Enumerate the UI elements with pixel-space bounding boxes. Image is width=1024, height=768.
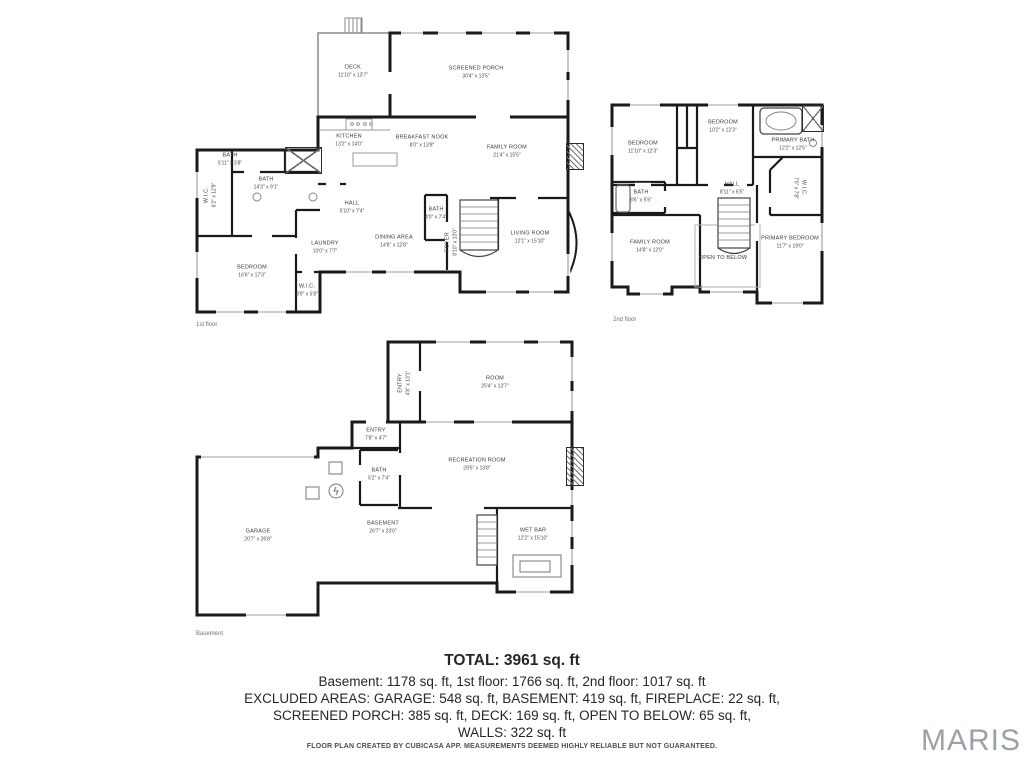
room-name: GARAGE	[244, 528, 271, 536]
room-label-entry: ENTRY 7'8" x 4'7"	[365, 427, 387, 442]
room-label-powder-bath: BATH 4'0" x 7'4"	[425, 206, 447, 221]
room-dims: 14'3" x 9'1"	[254, 184, 279, 191]
stairs-icon-first-floor	[460, 200, 498, 257]
room-name: W.I.C.	[203, 183, 211, 208]
area-summary: TOTAL: 3961 sq. ft Basement: 1178 sq. ft…	[0, 652, 1024, 741]
room-label-entry-upper: ENTRY 4'8" x 13'1"	[397, 371, 412, 396]
first-floor-plan: DECK 11'10" x 13'7" SCREENED PORCH 30'4"…	[186, 14, 606, 339]
room-label-breakfast-nook: BREAKFAST NOOK 8'0" x 13'8"	[396, 134, 449, 149]
room-name: PRIMARY BATH	[771, 137, 814, 145]
floor-areas-text: Basement: 1178 sq. ft, 1st floor: 1766 s…	[0, 673, 1024, 690]
room-dims: 3'9" x 5'8"	[296, 291, 318, 298]
room-dims: 26'7" x 23'0"	[367, 528, 399, 535]
room-label-wic-bedroom: W.I.C. 6'2" x 12'9"	[203, 183, 218, 208]
room-label-bath: BATH 8'6" x 5'5"	[630, 189, 652, 204]
room-label-hall: HALL 8'11" x 6'5"	[720, 181, 744, 196]
room-dims: 4'8" x 13'1"	[405, 371, 412, 396]
room-label-garage: GARAGE 20'7" x 26'8"	[244, 528, 271, 543]
room-label-hall: HALL 5'10" x 7'4"	[340, 200, 365, 215]
room-label-dining-area: DINING AREA 14'8" x 12'8"	[375, 234, 413, 249]
room-label-bath-main: BATH 14'3" x 9'1"	[254, 176, 279, 191]
room-dims: 12'2" x 15'10"	[518, 535, 548, 542]
basement-upper-outline	[388, 342, 572, 422]
room-name: BEDROOM	[237, 264, 267, 272]
room-label-open-to-below: OPEN TO BELOW	[699, 255, 748, 263]
room-dims: 16'6" x 17'3"	[237, 272, 267, 279]
room-name: FAMILY ROOM	[487, 144, 527, 152]
room-label-bath-small: BATH 5'11" x 3'8"	[218, 152, 242, 167]
basement-drawing	[186, 335, 606, 645]
floor-label-basement: Basement	[196, 631, 223, 637]
room-dims: 21'4" x 15'5"	[487, 152, 527, 159]
shower-icon	[285, 147, 322, 174]
room-name: FAMILY ROOM	[630, 239, 670, 247]
total-area-text: TOTAL: 3961 sq. ft	[0, 652, 1024, 670]
room-dims: 11'10" x 12'3"	[628, 148, 658, 155]
room-name: W.I.C.	[799, 177, 807, 199]
room-name: WET BAR	[518, 527, 548, 535]
room-dims: 8'10" x 13'0"	[452, 228, 459, 255]
room-name: BATH	[368, 467, 390, 475]
room-label-wet-bar: WET BAR 12'2" x 15'10"	[518, 527, 548, 542]
room-dims: 25'4" x 13'7"	[481, 383, 508, 390]
room-label-wic: W.I.C. 7'0" x 7'8"	[791, 177, 806, 199]
room-name: LAUNDRY	[311, 240, 339, 248]
room-dims: 30'4" x 13'5"	[449, 73, 504, 80]
room-dims: 10'2" x 12'3"	[708, 127, 738, 134]
bath-sinks-icon	[253, 193, 317, 201]
wet-bar-counter-icon	[513, 555, 561, 577]
room-name: HALL	[720, 181, 744, 189]
walls-area-text: WALLS: 322 sq. ft	[0, 724, 1024, 741]
room-name: ENTRY	[397, 371, 405, 396]
room-label-foyer: FOYER 8'10" x 13'0"	[444, 228, 459, 255]
room-label-primary-bath: PRIMARY BATH 12'2" x 12'5"	[771, 137, 814, 152]
fireplace-icon	[566, 447, 584, 486]
room-label-room: ROOM 25'4" x 13'7"	[481, 375, 508, 390]
floor-label-1st: 1st floor	[196, 322, 217, 328]
room-dims: 8'0" x 13'8"	[396, 142, 449, 149]
room-label-kitchen: KITCHEN 13'2" x 14'0"	[335, 133, 362, 148]
room-name: RECREATION ROOM	[448, 457, 505, 465]
room-label-basement-room: BASEMENT 26'7" x 23'0"	[367, 520, 399, 535]
basement-plan: ENTRY 4'8" x 13'1" ROOM 25'4" x 13'7" EN…	[186, 335, 606, 645]
room-name: SCREENED PORCH	[449, 65, 504, 73]
room-dims: 20'7" x 26'8"	[244, 536, 271, 543]
room-label-deck: DECK 11'10" x 13'7"	[338, 64, 368, 79]
fireplace-icon	[566, 143, 584, 170]
deck-stairs-icon	[345, 18, 362, 33]
room-dims: 14'8" x 12'8"	[375, 242, 413, 249]
room-dims: 10'0" x 7'7"	[311, 248, 339, 255]
room-name: BATH	[425, 206, 447, 214]
room-dims: 5'11" x 3'8"	[218, 160, 242, 167]
room-dims: 14'8" x 12'0"	[630, 247, 670, 254]
room-label-primary-bedroom: PRIMARY BEDROOM 11'7" x 19'0"	[761, 235, 819, 250]
excluded-areas-text-2: SCREENED PORCH: 385 sq. ft, DECK: 169 sq…	[0, 707, 1024, 724]
room-label-bedroom-2: BEDROOM 10'2" x 12'3"	[708, 119, 738, 134]
room-name: HALL	[340, 200, 365, 208]
room-dims: 7'0" x 7'8"	[791, 177, 798, 199]
room-name: BEDROOM	[708, 119, 738, 127]
room-dims: 6'2" x 12'9"	[211, 183, 218, 208]
room-name: OPEN TO BELOW	[699, 255, 748, 263]
room-dims: 5'10" x 7'4"	[340, 208, 365, 215]
maris-logo: MARIS	[921, 724, 1021, 758]
room-dims: 12'1" x 15'10"	[511, 238, 550, 245]
room-label-family-room: FAMILY ROOM 14'8" x 12'0"	[630, 239, 670, 254]
room-name: KITCHEN	[335, 133, 362, 141]
shower-icon	[802, 105, 824, 132]
second-floor-plan: BEDROOM 11'10" x 12'3" BEDROOM 10'2" x 1…	[605, 95, 830, 330]
room-name: PRIMARY BEDROOM	[761, 235, 819, 243]
room-name: LIVING ROOM	[511, 230, 550, 238]
room-name: DINING AREA	[375, 234, 413, 242]
stairs-icon-basement	[477, 515, 497, 565]
room-label-bedroom: BEDROOM 16'6" x 17'3"	[237, 264, 267, 279]
room-label-screened-porch: SCREENED PORCH 30'4" x 13'5"	[449, 65, 504, 80]
room-label-wic-small: W.I.C. 3'9" x 5'8"	[296, 283, 318, 298]
room-label-bedroom-1: BEDROOM 11'10" x 12'3"	[628, 140, 658, 155]
first-floor-drawing	[186, 14, 606, 339]
stairs-icon-second-floor	[718, 198, 750, 254]
excluded-areas-text-1: EXCLUDED AREAS: GARAGE: 548 sq. ft, BASE…	[0, 690, 1024, 707]
room-name: BEDROOM	[628, 140, 658, 148]
room-dims: 11'7" x 19'0"	[761, 243, 819, 250]
room-name: BATH	[630, 189, 652, 197]
room-name: DECK	[338, 64, 368, 72]
room-name: ROOM	[481, 375, 508, 383]
room-name: BASEMENT	[367, 520, 399, 528]
room-name: BREAKFAST NOOK	[396, 134, 449, 142]
room-label-living-room: LIVING ROOM 12'1" x 15'10"	[511, 230, 550, 245]
small-tub-icon	[616, 185, 630, 212]
room-dims: 12'2" x 12'5"	[771, 145, 814, 152]
room-dims: 8'11" x 6'5"	[720, 189, 744, 196]
room-dims: 8'6" x 5'5"	[630, 197, 652, 204]
room-label-family-room: FAMILY ROOM 21'4" x 15'5"	[487, 144, 527, 159]
room-dims: 4'0" x 7'4"	[425, 214, 447, 221]
room-dims: 13'2" x 14'0"	[335, 141, 362, 148]
room-name: W.I.C.	[296, 283, 318, 291]
disclaimer-text: FLOOR PLAN CREATED BY CUBICASA APP. MEAS…	[0, 743, 1024, 750]
room-label-bath: BATH 5'2" x 7'4"	[368, 467, 390, 482]
room-dims: 7'8" x 4'7"	[365, 435, 387, 442]
room-name: BATH	[254, 176, 279, 184]
room-label-laundry: LAUNDRY 10'0" x 7'7"	[311, 240, 339, 255]
room-label-recreation-room: RECREATION ROOM 29'5" x 13'8"	[448, 457, 505, 472]
room-name: ENTRY	[365, 427, 387, 435]
room-dims: 11'10" x 13'7"	[338, 72, 368, 79]
room-dims: 5'2" x 7'4"	[368, 475, 390, 482]
room-name: BATH	[218, 152, 242, 160]
floor-plan-page: DECK 11'10" x 13'7" SCREENED PORCH 30'4"…	[0, 0, 1024, 768]
utility-icons	[306, 462, 343, 499]
floor-label-2nd: 2nd floor	[613, 317, 636, 323]
bathtub-icon	[760, 108, 802, 134]
room-name: FOYER	[444, 228, 452, 255]
room-dims: 29'5" x 13'8"	[448, 465, 505, 472]
